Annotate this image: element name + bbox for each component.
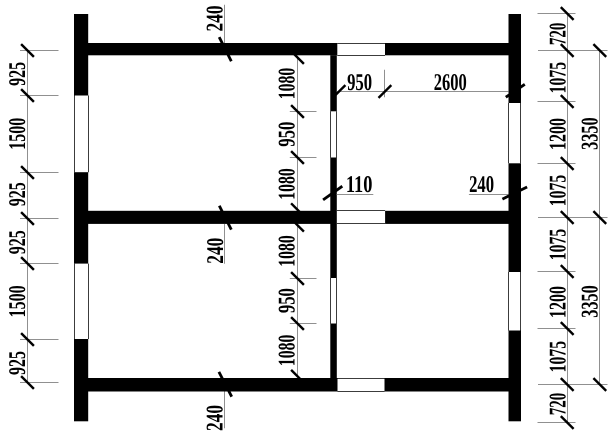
svg-text:1075: 1075 bbox=[545, 229, 571, 261]
svg-text:240: 240 bbox=[203, 238, 229, 264]
svg-text:720: 720 bbox=[545, 23, 571, 46]
svg-text:1075: 1075 bbox=[545, 62, 571, 94]
svg-text:240: 240 bbox=[469, 172, 494, 198]
svg-text:925: 925 bbox=[5, 351, 31, 375]
svg-text:1200: 1200 bbox=[545, 118, 571, 150]
svg-text:2600: 2600 bbox=[434, 70, 467, 96]
svg-text:1075: 1075 bbox=[545, 175, 571, 207]
svg-text:950: 950 bbox=[347, 70, 372, 96]
svg-text:1080: 1080 bbox=[275, 68, 301, 100]
svg-text:950: 950 bbox=[275, 288, 301, 313]
svg-text:925: 925 bbox=[5, 230, 31, 254]
svg-text:1080: 1080 bbox=[275, 335, 301, 367]
svg-text:240: 240 bbox=[203, 405, 229, 431]
svg-text:1200: 1200 bbox=[545, 286, 571, 318]
svg-text:3350: 3350 bbox=[578, 285, 604, 318]
svg-text:720: 720 bbox=[545, 393, 571, 416]
svg-text:110: 110 bbox=[346, 172, 373, 198]
svg-text:925: 925 bbox=[5, 182, 31, 206]
svg-text:1500: 1500 bbox=[5, 118, 31, 150]
svg-text:1080: 1080 bbox=[275, 235, 301, 267]
svg-text:950: 950 bbox=[275, 122, 301, 147]
svg-text:1500: 1500 bbox=[5, 285, 31, 317]
svg-text:1080: 1080 bbox=[275, 168, 301, 200]
svg-text:925: 925 bbox=[5, 62, 31, 86]
svg-text:1075: 1075 bbox=[545, 341, 571, 373]
svg-text:3350: 3350 bbox=[578, 117, 604, 150]
svg-text:240: 240 bbox=[203, 6, 229, 32]
